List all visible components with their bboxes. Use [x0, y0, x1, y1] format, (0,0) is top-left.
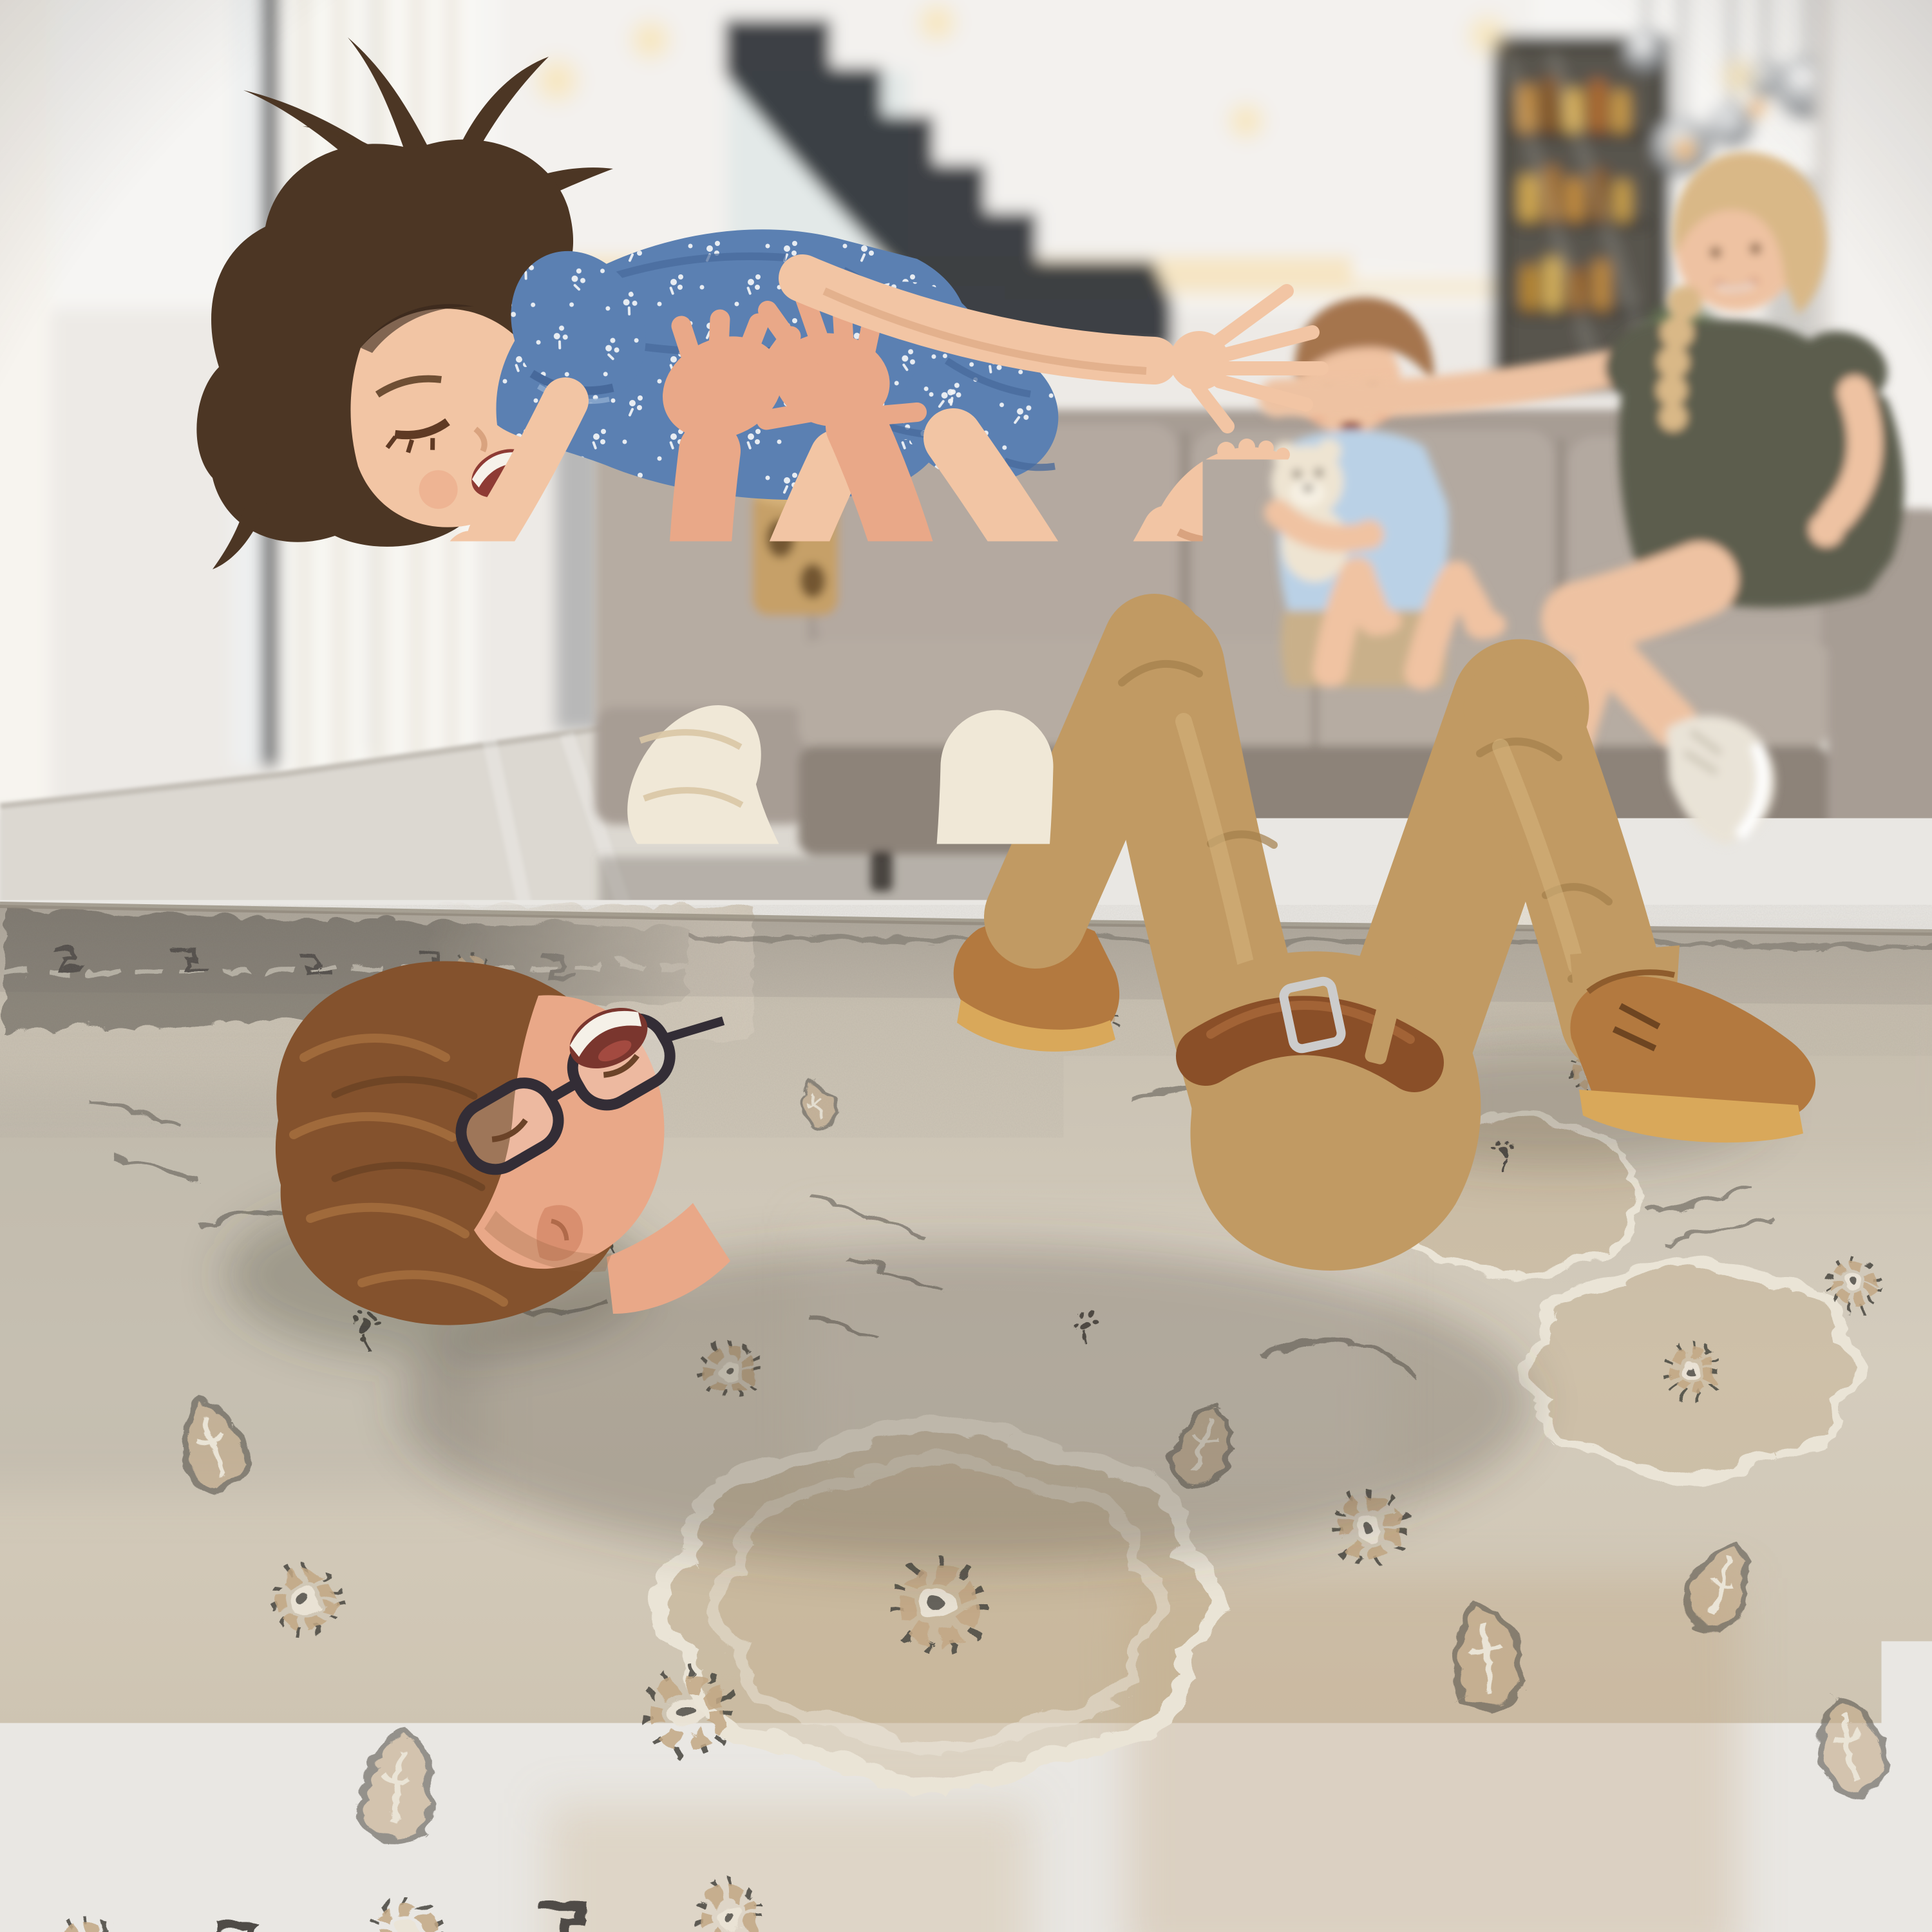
photo-vignette	[0, 0, 1932, 1932]
scene-canvas	[0, 0, 1932, 1932]
family-livingroom-photo	[0, 0, 1932, 1932]
